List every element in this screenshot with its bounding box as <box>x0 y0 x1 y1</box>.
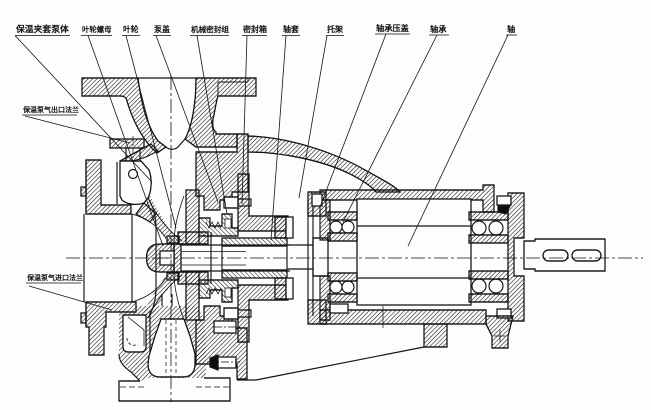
svg-text:密封箱: 密封箱 <box>242 24 267 34</box>
svg-text:保温泵气出口法兰: 保温泵气出口法兰 <box>22 105 79 114</box>
svg-text:叶轮: 叶轮 <box>123 24 139 34</box>
svg-text:轴套: 轴套 <box>283 24 300 34</box>
svg-text:保温夹套泵体: 保温夹套泵体 <box>15 23 69 34</box>
svg-text:轴承: 轴承 <box>430 24 447 34</box>
svg-text:保温泵气进口法兰: 保温泵气进口法兰 <box>26 273 83 282</box>
svg-text:托架: 托架 <box>327 24 343 34</box>
svg-text:叶轮螺母: 叶轮螺母 <box>82 25 112 34</box>
svg-text:泵盖: 泵盖 <box>154 24 170 34</box>
svg-text:轴承压盖: 轴承压盖 <box>376 23 409 33</box>
svg-text:轴: 轴 <box>507 24 515 34</box>
svg-text:机械密封组: 机械密封组 <box>191 24 229 34</box>
